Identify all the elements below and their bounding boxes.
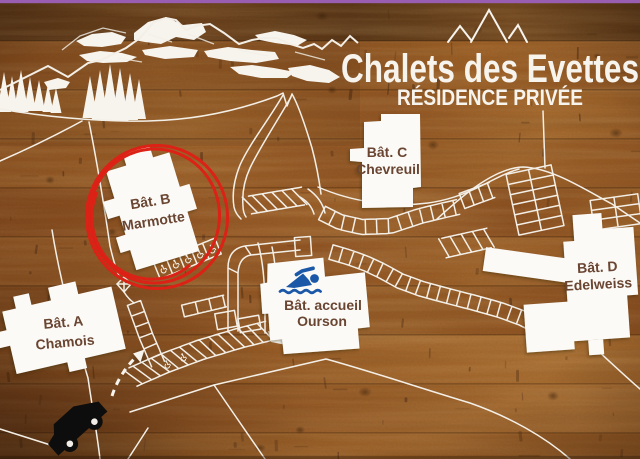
svg-text:Ourson: Ourson bbox=[297, 313, 347, 329]
svg-text:Bât. C: Bât. C bbox=[367, 144, 407, 160]
svg-text:Chevreuil: Chevreuil bbox=[356, 161, 420, 177]
svg-text:Bât. D: Bât. D bbox=[577, 258, 618, 276]
svg-text:RÉSIDENCE PRIVÉE: RÉSIDENCE PRIVÉE bbox=[397, 85, 583, 110]
svg-text:Bât. accueil: Bât. accueil bbox=[284, 297, 362, 313]
